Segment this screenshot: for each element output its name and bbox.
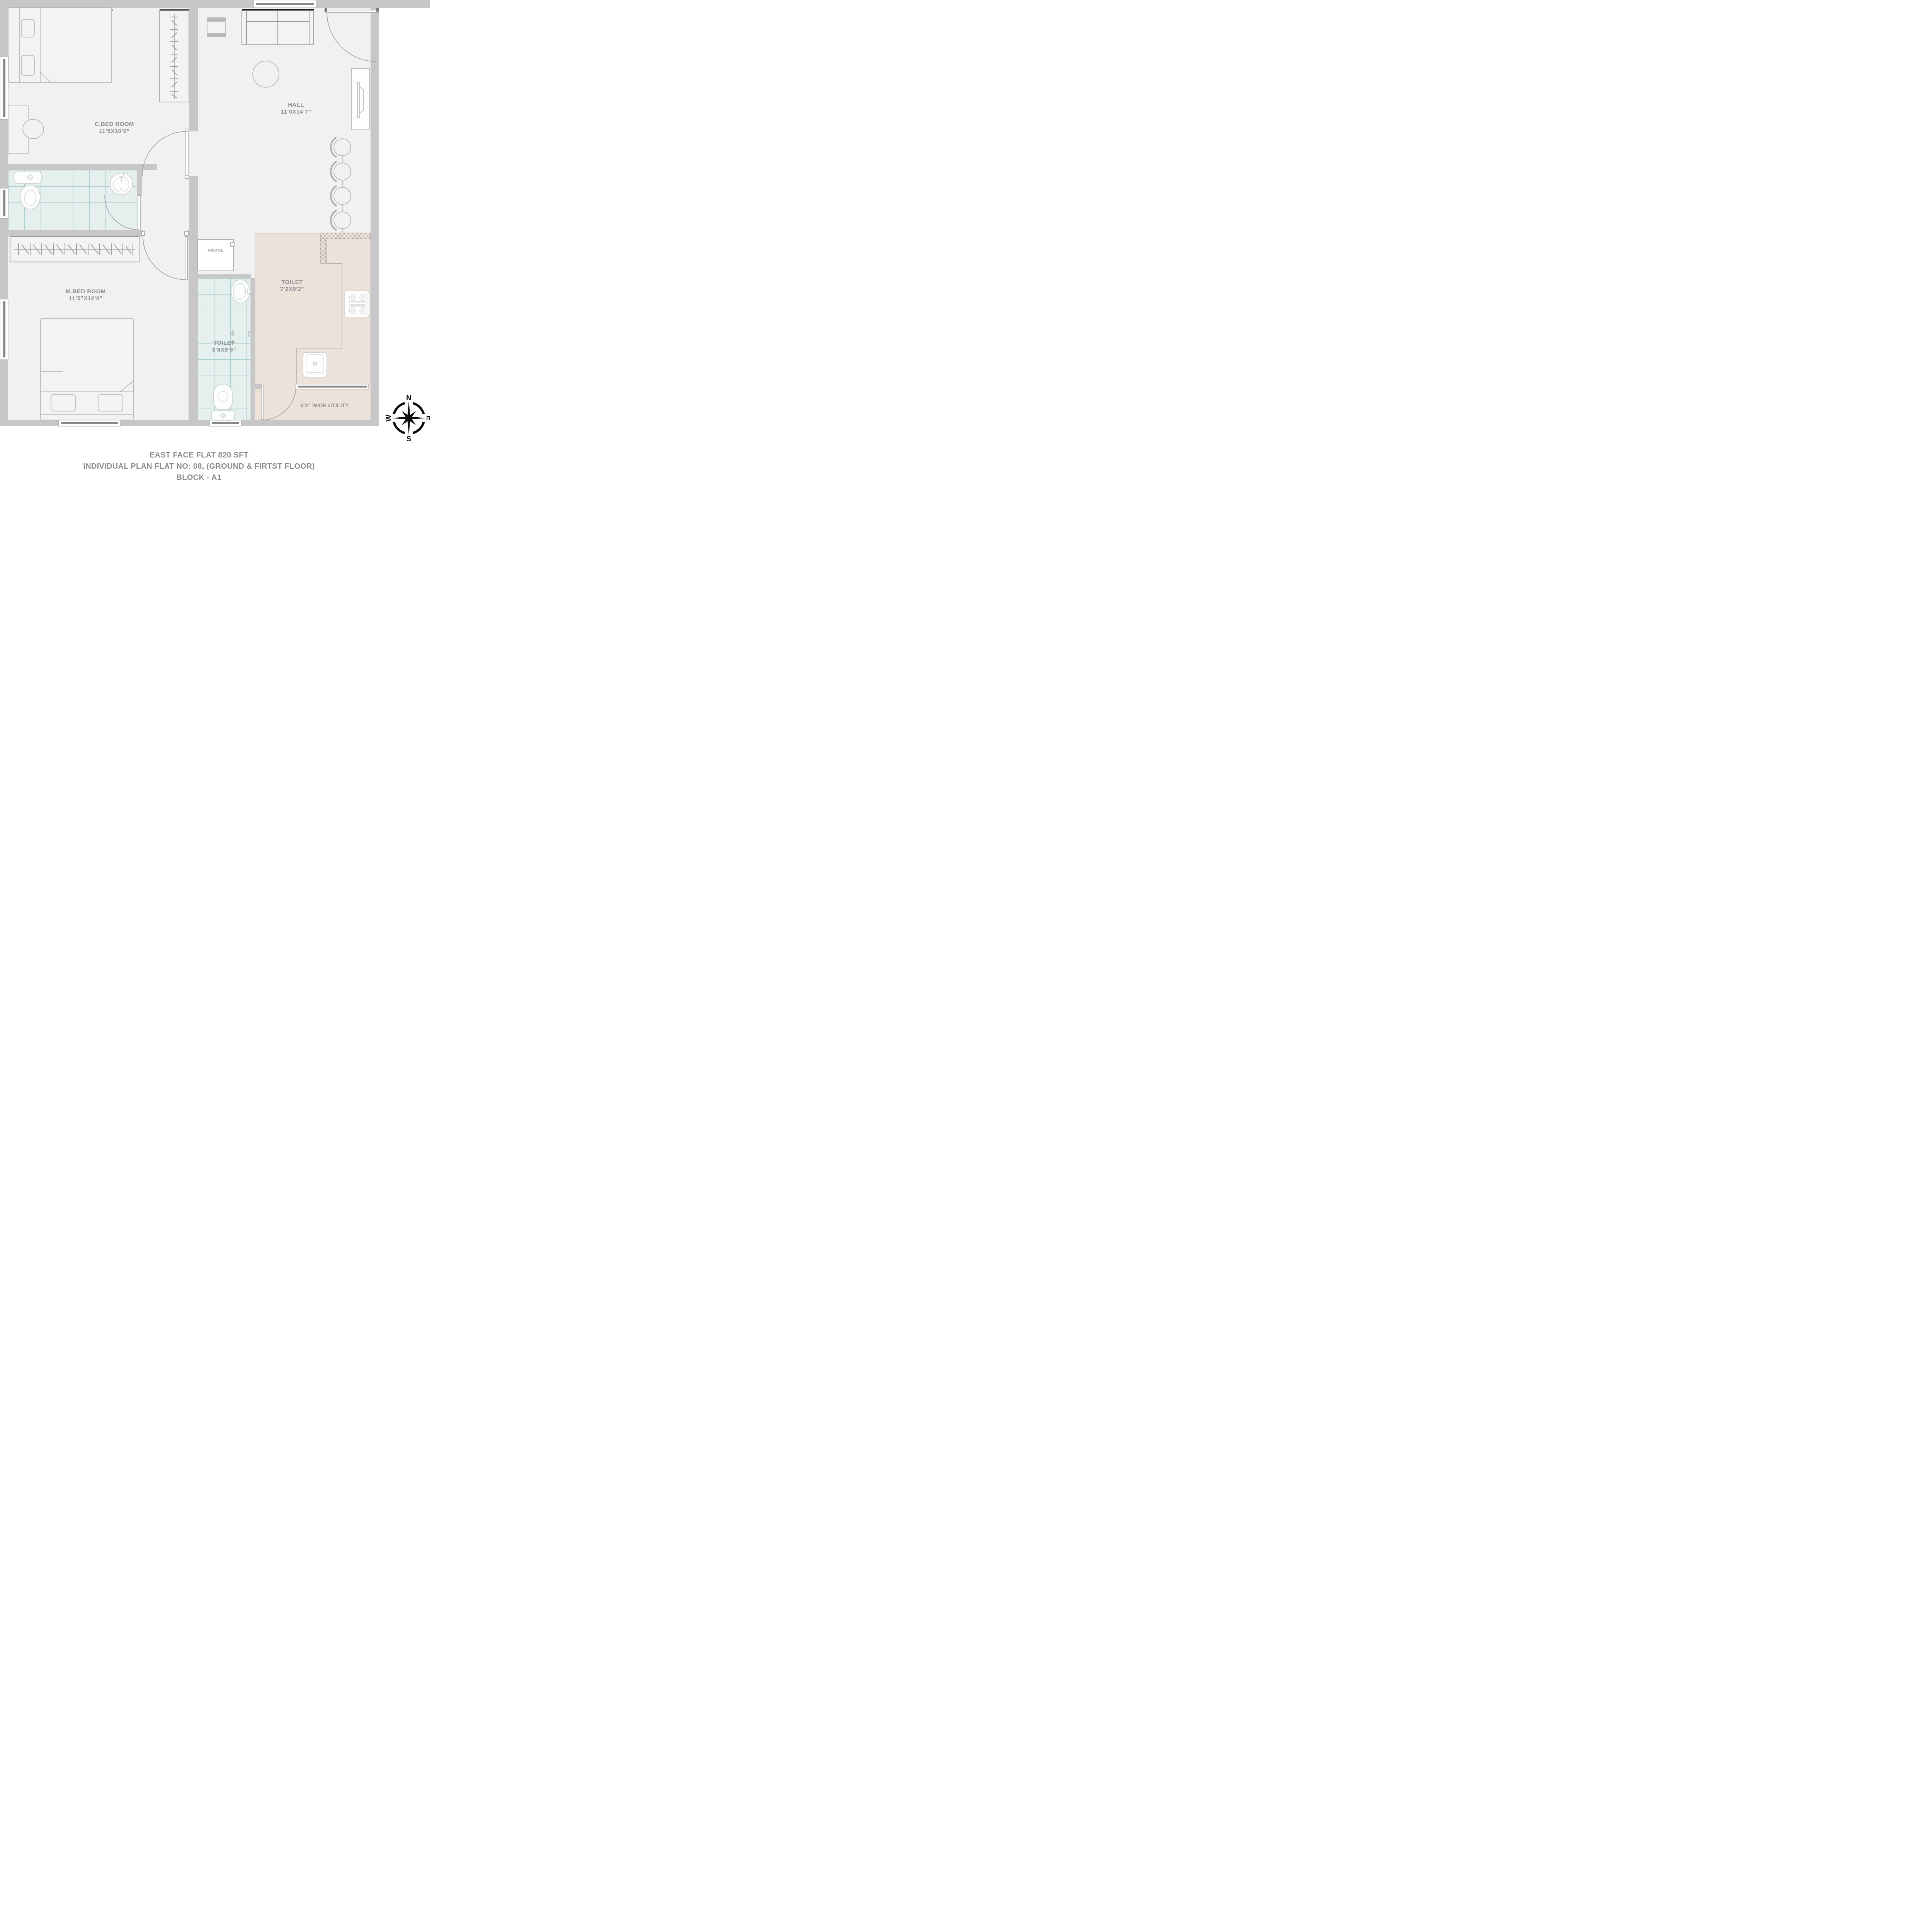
room-dims: 7’2X9’2” [280, 286, 304, 293]
floor-plan-drawing: N S E W [0, 0, 430, 489]
compass-south: S [406, 435, 412, 443]
window-left-3 [0, 299, 8, 360]
compass-north: N [406, 394, 412, 402]
title-block: EAST FACE FLAT 820 SFT INDIVIDUAL PLAN F… [0, 450, 398, 483]
wardrobe-icon [160, 11, 189, 102]
double-bed-icon [9, 8, 112, 83]
window-bottom-1 [59, 420, 121, 426]
room-label-mbed: M.BED ROOM 11’5”X12’0” [66, 288, 105, 302]
window-left-2 [0, 188, 8, 218]
title-line-1: EAST FACE FLAT 820 SFT [0, 450, 398, 461]
toilet-commode-icon [211, 385, 235, 420]
window-top [253, 0, 316, 8]
wash-basin-icon [110, 173, 133, 195]
room-name: FRIDGE [207, 248, 223, 253]
counter-hatch-horizontal [320, 233, 371, 239]
room-dims: 11’5”X12’0” [66, 295, 105, 302]
wall-right [371, 8, 379, 426]
room-name: M.BED ROOM [66, 288, 105, 295]
room-dims: 3’6X9’5” [212, 347, 236, 354]
wall-toilet1-right-upper [137, 170, 142, 196]
compass-west: W [385, 415, 393, 422]
wall-under-fridge [197, 274, 251, 278]
room-dims: 11’5X10’0” [95, 128, 134, 135]
compass-east: E [425, 416, 430, 421]
window-utility [296, 384, 369, 389]
floor-plan-page: N S E W C.BED ROOM 11’5X10’0” HALL 11’0X… [0, 0, 430, 489]
window-bottom-2 [209, 420, 241, 426]
double-bed-icon [41, 318, 133, 420]
wall-mbed-top [8, 230, 143, 236]
window-left-1 [0, 56, 8, 119]
room-name: TOILET [280, 279, 304, 286]
room-name: TOILET [212, 340, 236, 347]
wall-mbed-top-stub [187, 230, 198, 236]
tv-unit-icon [352, 68, 369, 130]
wall-toilet1-top [8, 164, 157, 170]
wardrobe-icon [10, 236, 139, 262]
room-dims: 11’0X14’7” [281, 109, 311, 116]
entrance-jamb-right [376, 8, 379, 12]
room-name: C.BED ROOM [95, 121, 134, 128]
room-label-toilet-small: TOILET 3’6X9’5” [212, 340, 236, 354]
wall-cbed-right-lower [189, 176, 198, 230]
round-table-icon [253, 61, 279, 87]
compass-star [392, 401, 426, 435]
compass-icon: N S E W [385, 394, 430, 443]
wall-top [0, 0, 430, 8]
sofa-icon [242, 11, 314, 45]
wall-cbed-right-upper [189, 8, 198, 131]
chair-icon [23, 119, 44, 139]
room-label-cbed: C.BED ROOM 11’5X10’0” [95, 121, 134, 135]
room-label-utility: 3’3” WIDE UTILITY [300, 402, 349, 409]
wall-bottom [0, 420, 379, 426]
wall-mbed-right [189, 236, 198, 420]
room-name: 3’3” WIDE UTILITY [300, 402, 349, 409]
room-label-toilet-big: TOILET 7’2X9’2” [280, 279, 304, 293]
title-line-3: BLOCK - A1 [0, 472, 398, 483]
counter-hatch-vertical [320, 239, 326, 264]
room-label-hall: HALL 11’0X14’7” [281, 102, 311, 116]
side-table-icon [207, 18, 226, 37]
title-line-2: INDIVIDUAL PLAN FLAT NO: 08, (GROUND & F… [0, 461, 398, 472]
sink-icon [303, 352, 327, 377]
wall-toilet2-right [251, 278, 255, 420]
room-label-fridge: FRIDGE [207, 248, 223, 253]
room-name: HALL [281, 102, 311, 109]
stove-icon [345, 291, 370, 318]
entrance-jamb-left [325, 8, 327, 12]
fridge-icon [198, 240, 234, 271]
